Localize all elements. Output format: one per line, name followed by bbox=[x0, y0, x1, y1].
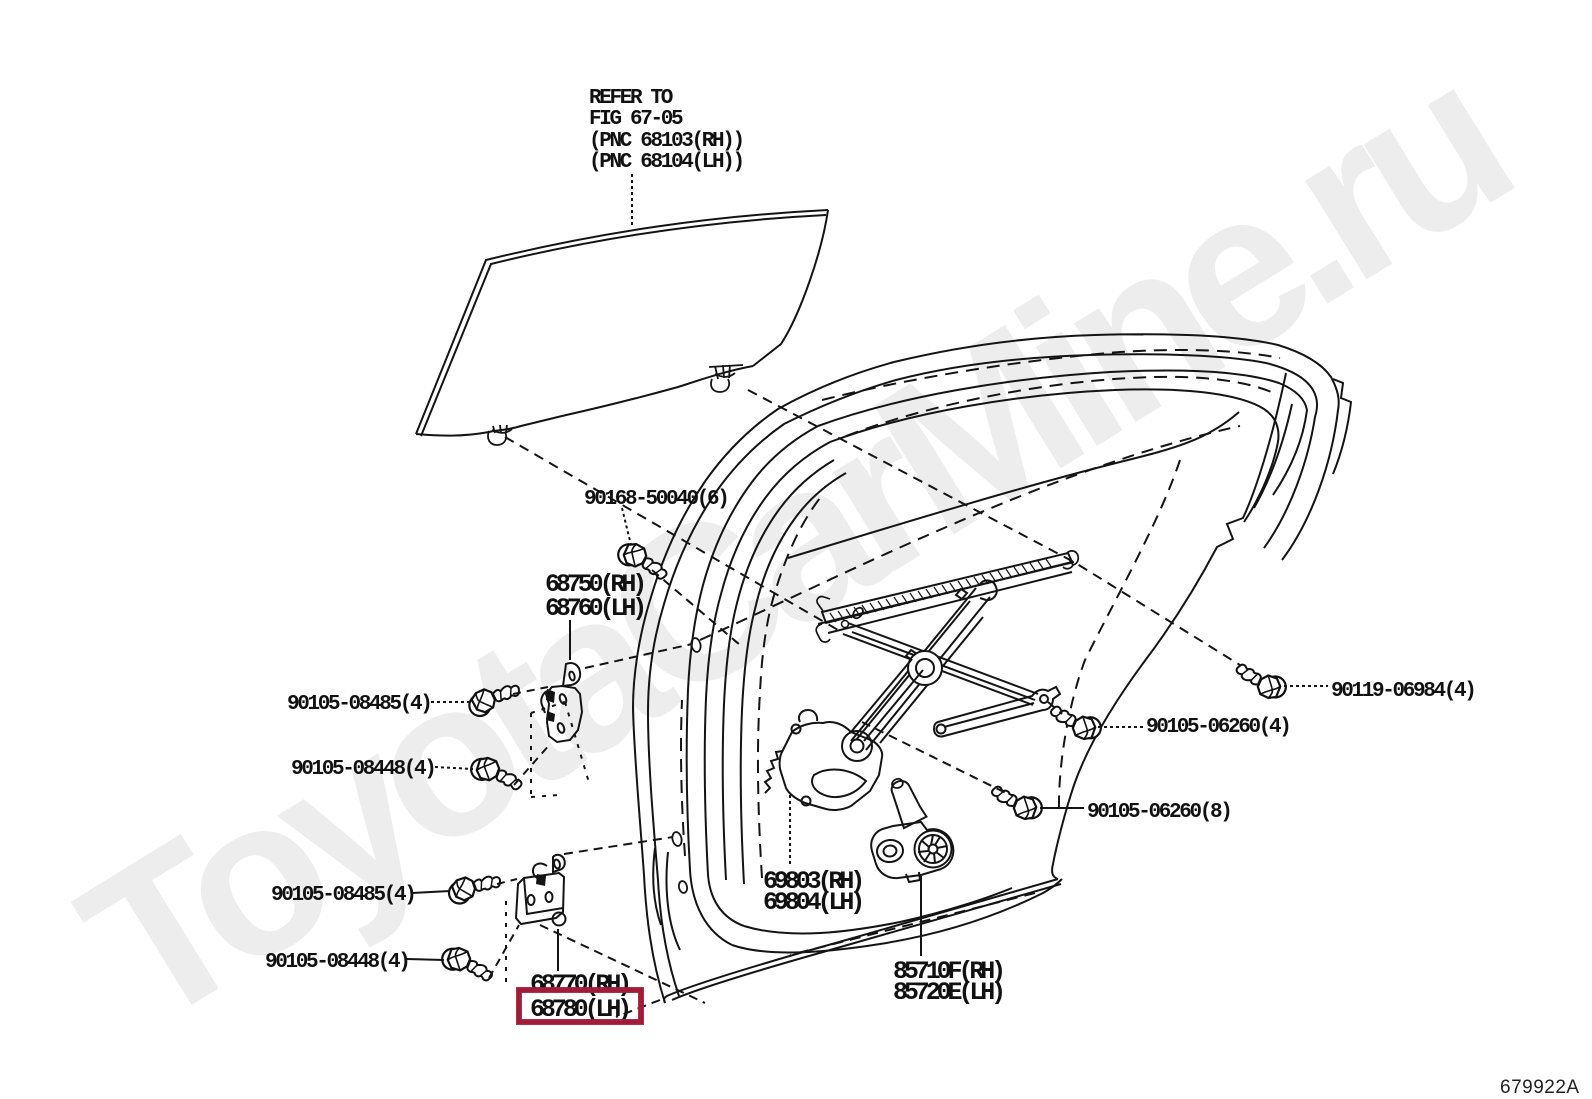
svg-text:679922A: 679922A bbox=[1500, 1077, 1580, 1098]
svg-text:68760(LH): 68760(LH) bbox=[545, 594, 643, 623]
svg-text:90105-08485(4): 90105-08485(4) bbox=[271, 884, 415, 907]
svg-text:90105-08448(4): 90105-08448(4) bbox=[265, 951, 409, 974]
svg-text:90168-50040(6): 90168-50040(6) bbox=[584, 488, 728, 511]
svg-text:85720E(LH): 85720E(LH) bbox=[893, 978, 1002, 1007]
svg-text:FIG 67-05: FIG 67-05 bbox=[589, 108, 683, 131]
svg-text:90105-08448(4): 90105-08448(4) bbox=[291, 758, 435, 781]
svg-text:(PNC 68103(RH)): (PNC 68103(RH)) bbox=[589, 130, 743, 153]
svg-text:90119-06984(4): 90119-06984(4) bbox=[1331, 680, 1475, 703]
svg-text:69804(LH): 69804(LH) bbox=[763, 888, 861, 917]
svg-text:90105-08485(4): 90105-08485(4) bbox=[287, 693, 431, 716]
svg-text:(PNC 68104(LH)): (PNC 68104(LH)) bbox=[589, 151, 743, 174]
svg-text:90105-06260(4): 90105-06260(4) bbox=[1146, 716, 1290, 739]
svg-text:REFER TO: REFER TO bbox=[589, 87, 673, 110]
svg-text:90105-06260(8): 90105-06260(8) bbox=[1087, 801, 1231, 824]
